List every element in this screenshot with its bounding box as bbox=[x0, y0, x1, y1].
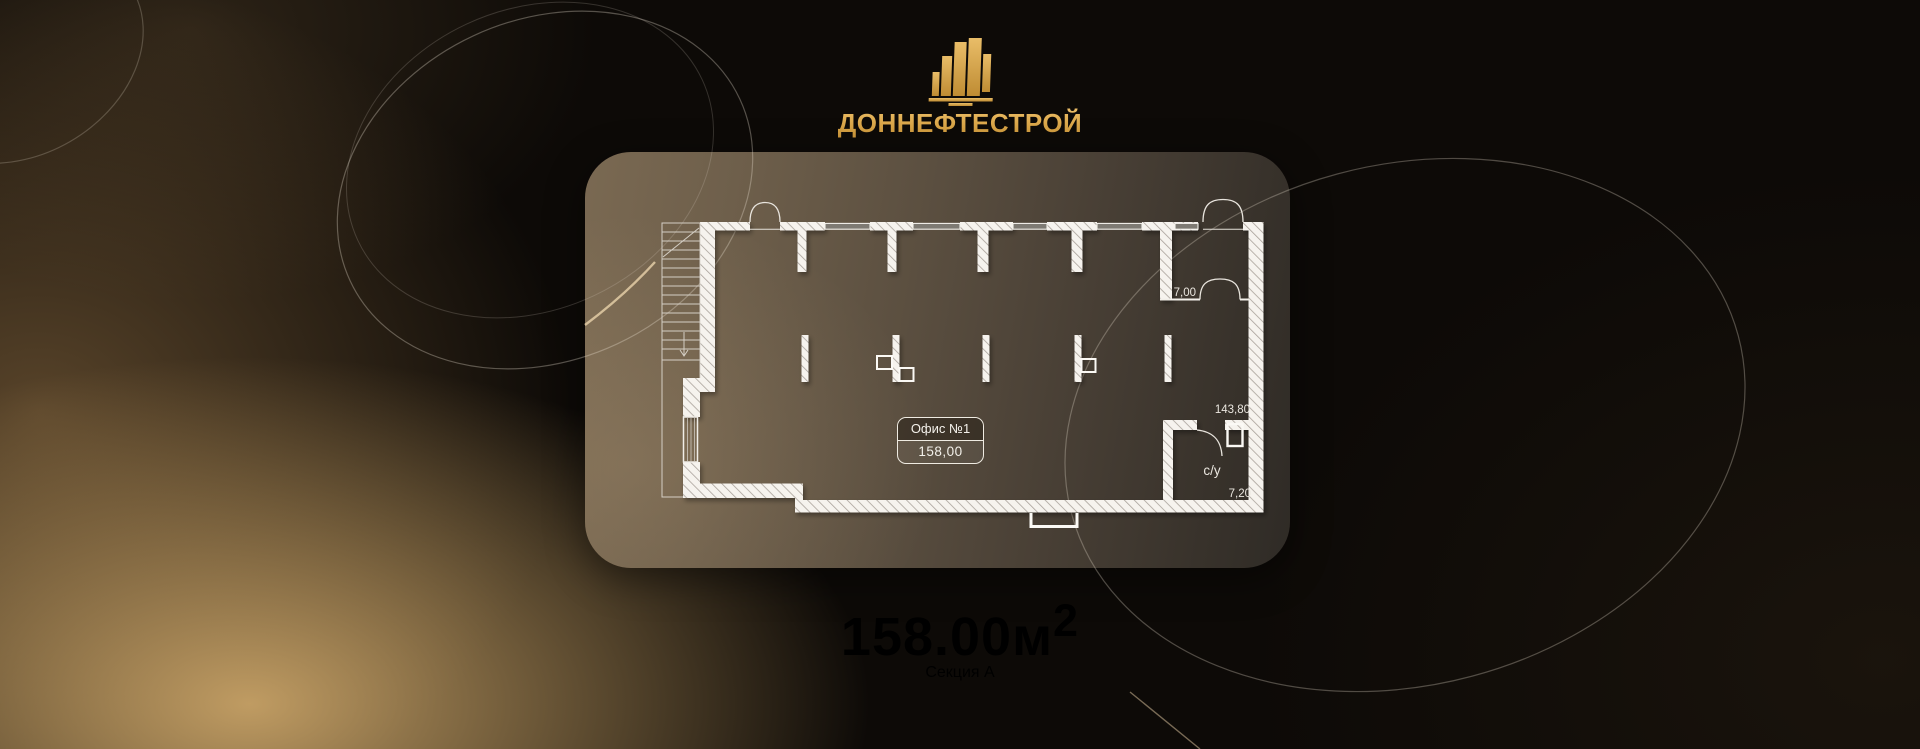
office-tag-title: Офис №1 bbox=[898, 418, 983, 441]
dimension-label: 143,80 bbox=[1215, 404, 1250, 416]
left-window bbox=[684, 417, 698, 462]
area-sup: 2 bbox=[1053, 595, 1079, 646]
bathroom-label: с/у bbox=[1203, 463, 1221, 478]
bathroom-area-label: 7,20 bbox=[1229, 488, 1251, 500]
office-tag: Офис №1 158,00 bbox=[897, 417, 984, 464]
entrance-door-2-icon bbox=[1203, 200, 1243, 223]
summary-block: 158.00м2 Секция А bbox=[0, 598, 1920, 682]
bathroom-door-icon bbox=[1197, 430, 1222, 456]
brand-header: ДОННЕФТЕСТРОЙ bbox=[0, 26, 1920, 139]
total-area-value: 158.00м2 bbox=[0, 598, 1920, 664]
room-area-label: 7,00 bbox=[1174, 287, 1196, 299]
office-tag-area: 158,00 bbox=[898, 441, 983, 463]
poster-background: 7,00 143,80 с/у 7,20 ДОННЕФТЕСТРОЙ Офис … bbox=[0, 0, 1920, 749]
entrance-door-icon bbox=[750, 203, 780, 223]
entry-porch bbox=[1031, 513, 1077, 527]
area-number: 158.00 bbox=[841, 607, 1012, 667]
area-unit: м bbox=[1012, 607, 1053, 667]
storage-door-icon bbox=[1200, 279, 1240, 300]
section-label: Секция А bbox=[0, 664, 1920, 682]
floor-plan: 7,00 143,80 с/у 7,20 bbox=[662, 200, 1264, 527]
brand-name: ДОННЕФТЕСТРОЙ bbox=[838, 108, 1083, 139]
